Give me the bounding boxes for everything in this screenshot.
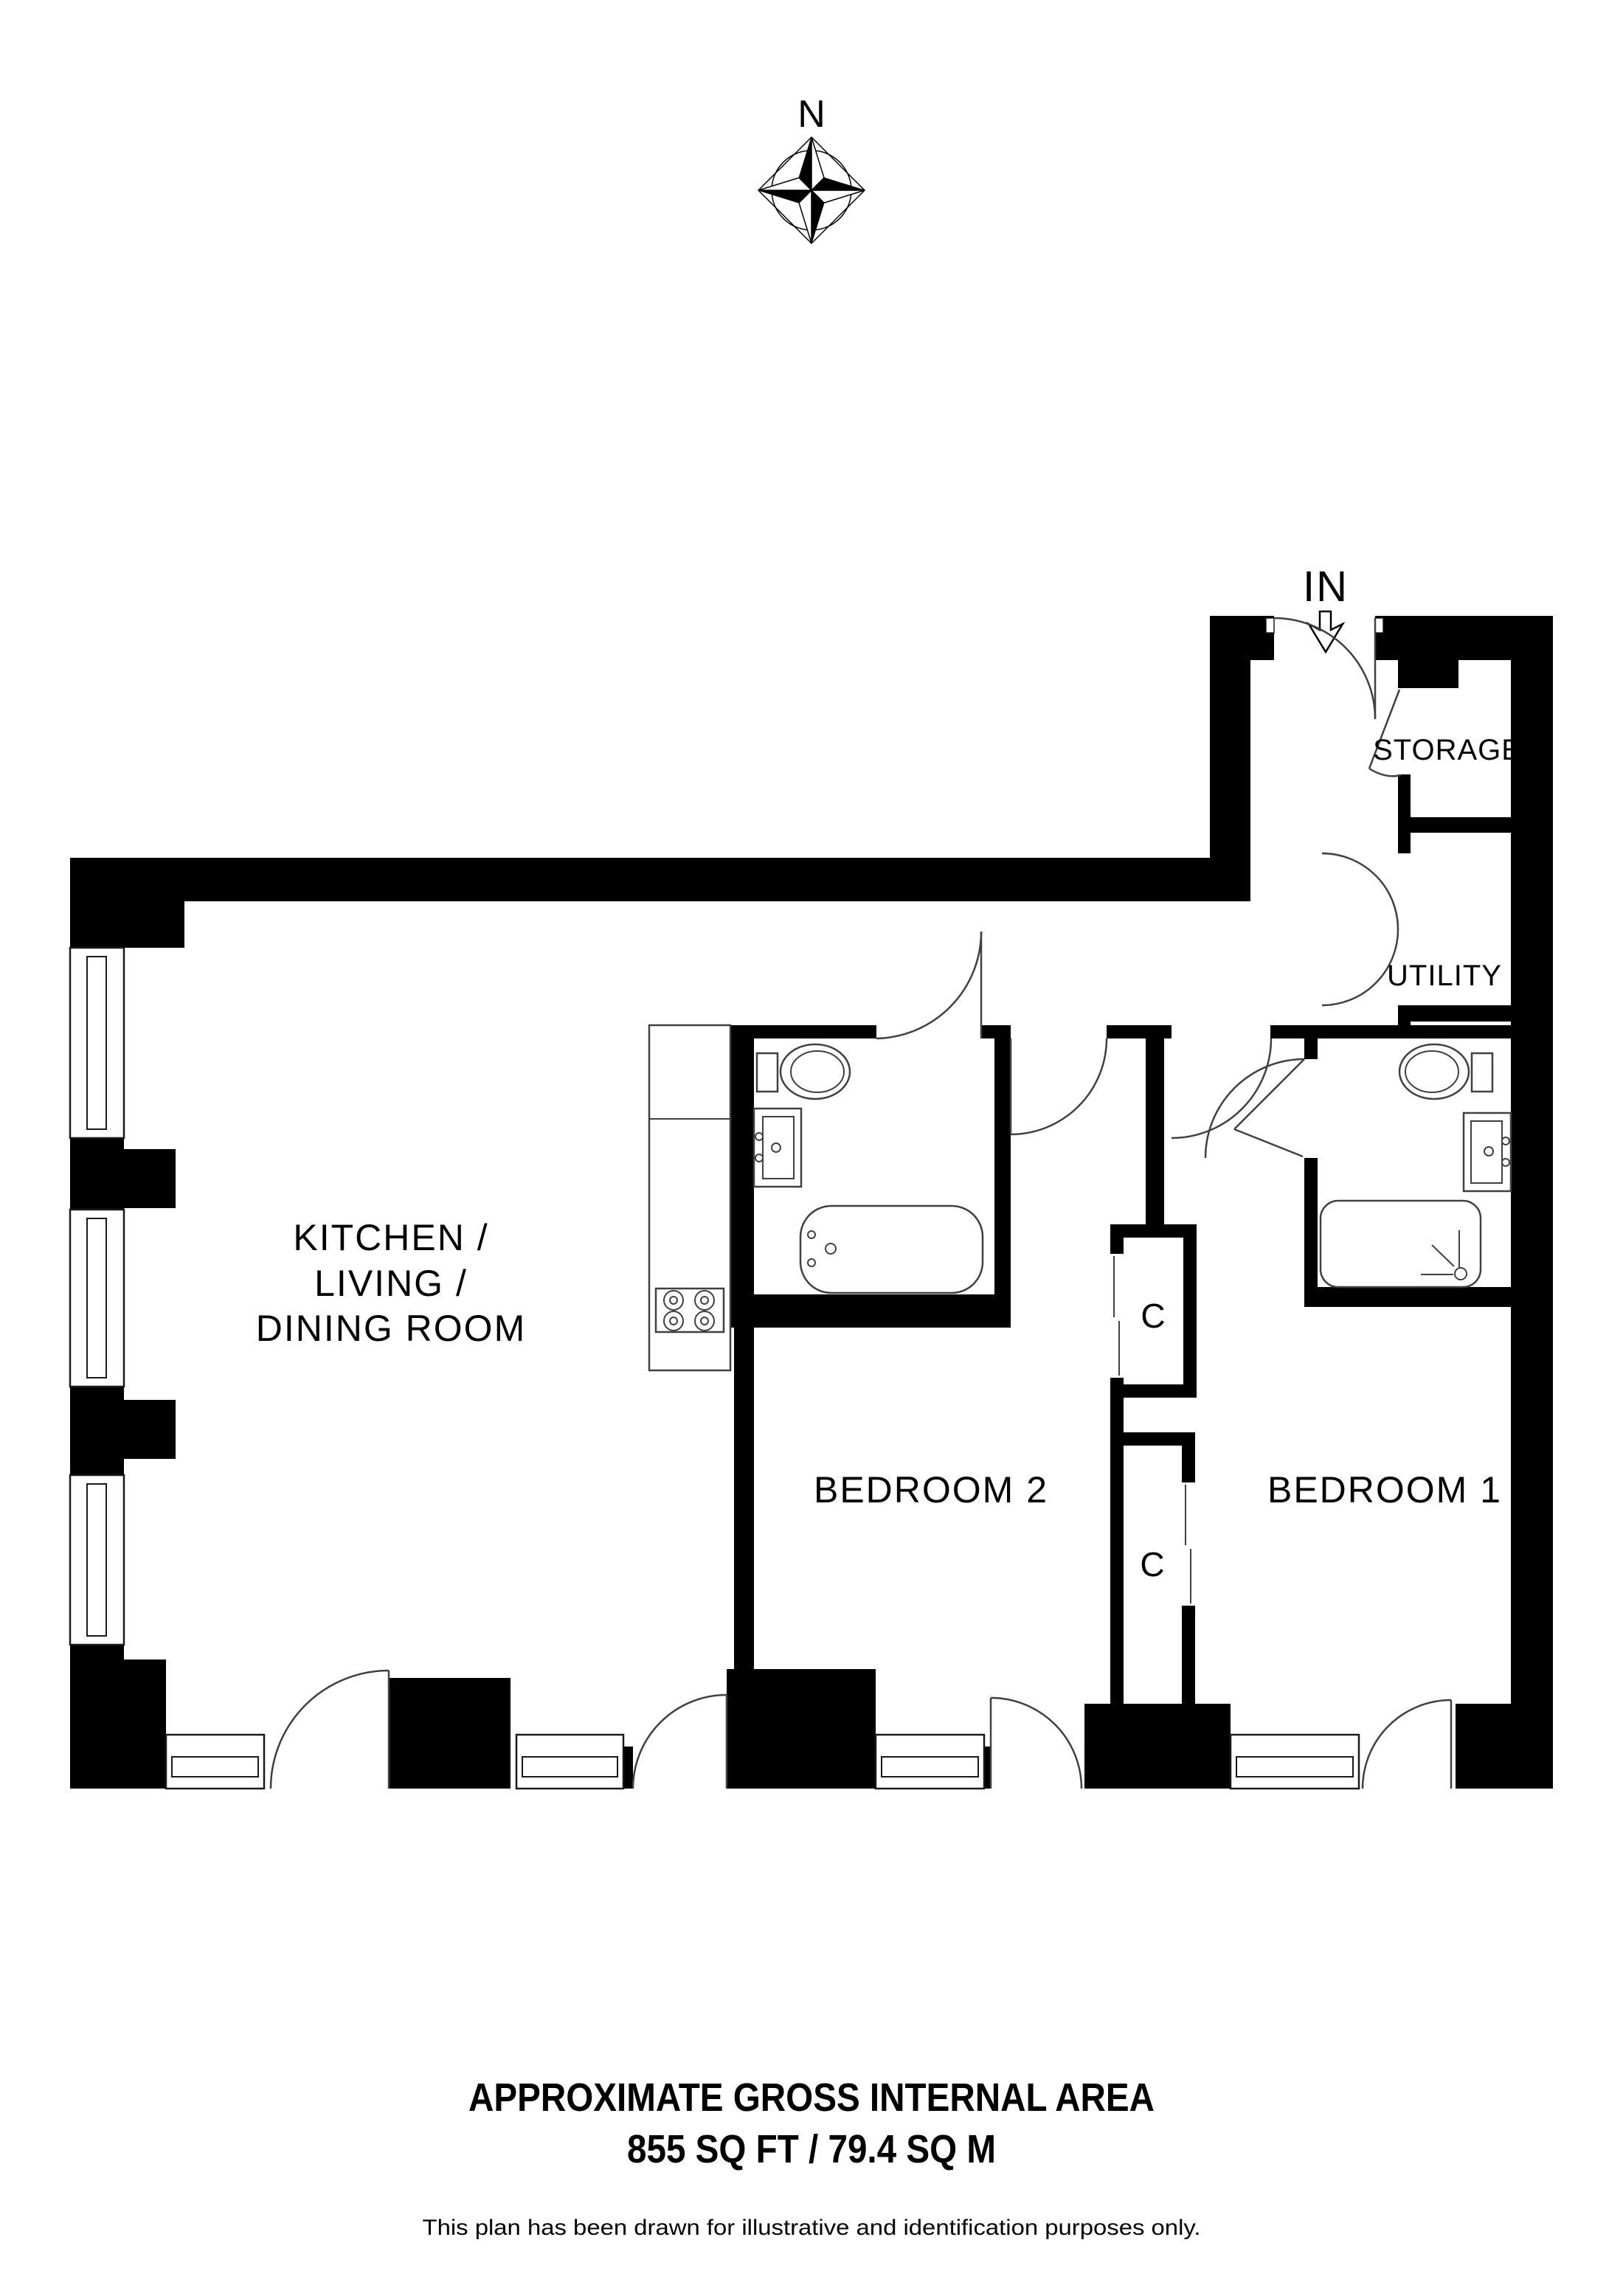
compass: N: [758, 93, 865, 243]
room-label-living: LIVING /: [314, 1263, 468, 1304]
ensuite-fixtures: [1321, 1044, 1511, 1287]
window: [516, 1735, 623, 1789]
doors: [271, 618, 1451, 1789]
closet-label-lower: C: [1140, 1545, 1164, 1584]
floor-plan-page: N IN: [0, 0, 1623, 2296]
toilet-fixture: [1399, 1044, 1492, 1099]
closet-label-upper: C: [1141, 1297, 1165, 1335]
floor-plan: N IN: [0, 0, 1623, 2296]
window: [876, 1735, 984, 1789]
window: [166, 1735, 264, 1789]
room-label-utility: UTILITY: [1387, 960, 1502, 992]
kitchen-counter: [649, 1025, 730, 1370]
bathroom-fixtures: [754, 1044, 983, 1293]
hob-fixture: [656, 1289, 724, 1332]
bedroom-1-balcony-door-arc: [1363, 1700, 1451, 1789]
living-room-door-arc-2: [633, 1695, 727, 1789]
disclaimer-text: This plan has been drawn for illustrativ…: [423, 2216, 1201, 2240]
bathroom-door-arc: [876, 932, 981, 1038]
window: [70, 1210, 124, 1387]
compass-north-label: N: [797, 93, 826, 136]
entrance-label: IN: [1303, 563, 1349, 611]
compass-rose-icon: [758, 137, 865, 243]
living-room-door-arc: [271, 1671, 389, 1789]
sink-fixture: [754, 1109, 801, 1187]
room-label-bedroom-1: BEDROOM 1: [1267, 1469, 1502, 1511]
room-label-bedroom-2: BEDROOM 2: [814, 1469, 1048, 1511]
entrance: IN: [1303, 563, 1349, 652]
room-label-dining: DINING ROOM: [256, 1308, 526, 1349]
window: [70, 1475, 124, 1645]
bedroom-1-door-arc: [1172, 1038, 1304, 1138]
area-value: 855 SQ FT / 79.4 SQ M: [627, 2127, 996, 2171]
shower-fixture: [1321, 1201, 1481, 1287]
bathtub-fixture: [800, 1206, 983, 1293]
footer: APPROXIMATE GROSS INTERNAL AREA 855 SQ F…: [423, 2075, 1201, 2240]
room-label-storage: STORAGE: [1373, 734, 1522, 766]
toilet-fixture: [757, 1044, 850, 1099]
bedroom-2-door-arc: [1011, 1038, 1107, 1134]
bedroom-2-balcony-door-arc: [991, 1698, 1082, 1789]
window: [70, 948, 124, 1138]
window: [1231, 1735, 1359, 1789]
sink-fixture: [1464, 1113, 1511, 1191]
area-title: APPROXIMATE GROSS INTERNAL AREA: [468, 2075, 1155, 2120]
room-label-kitchen: KITCHEN /: [293, 1217, 488, 1258]
